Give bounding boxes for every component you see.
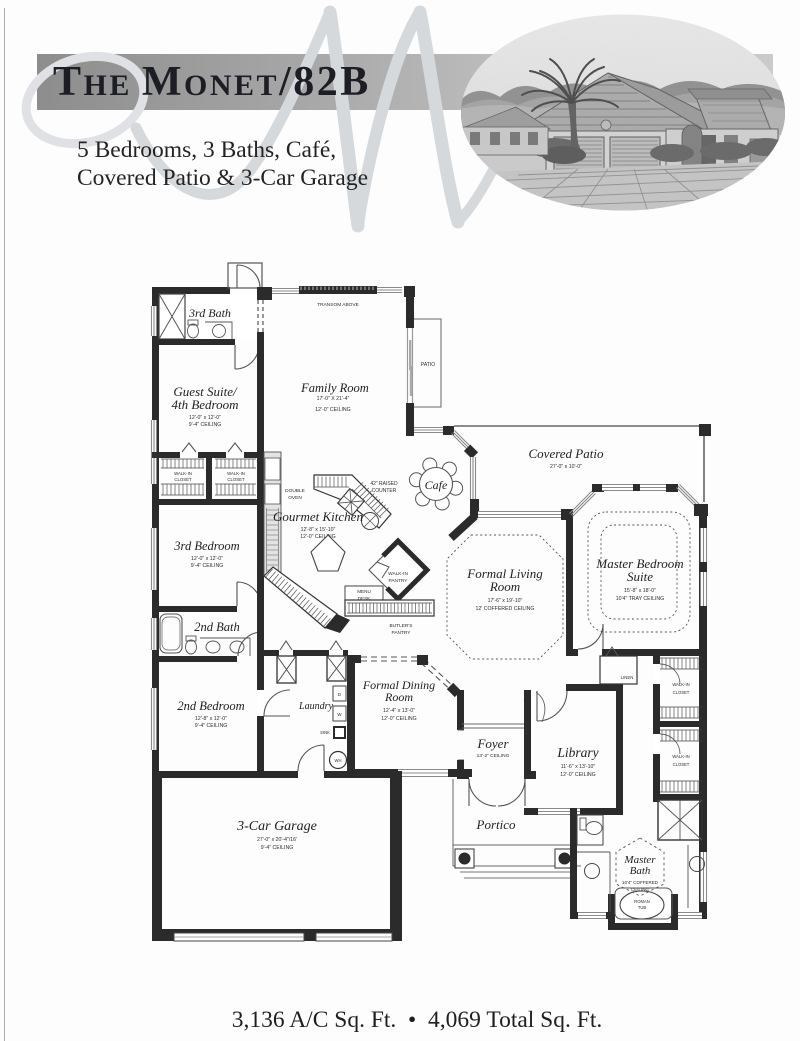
svg-text:CLOSET: CLOSET	[227, 477, 245, 482]
svg-text:WALK-IN: WALK-IN	[174, 471, 192, 476]
svg-text:13'-2" CEILING: 13'-2" CEILING	[477, 753, 510, 759]
svg-text:OVEN: OVEN	[288, 495, 302, 501]
svg-text:Cafe: Cafe	[425, 478, 448, 492]
svg-text:WH: WH	[335, 758, 342, 763]
svg-text:WALK-IN: WALK-IN	[672, 682, 689, 687]
svg-text:10'4" COFFERED: 10'4" COFFERED	[622, 880, 659, 885]
svg-text:Family Room: Family Room	[300, 381, 369, 395]
svg-text:12'-0" CEILING: 12'-0" CEILING	[315, 407, 350, 413]
svg-text:CEILING: CEILING	[631, 887, 650, 892]
svg-text:9'-4" CEILING: 9'-4" CEILING	[195, 723, 228, 729]
svg-text:D: D	[338, 692, 341, 697]
svg-text:17'-6" x 19'-10": 17'-6" x 19'-10"	[488, 598, 523, 604]
svg-text:27'-0" x 10'-0": 27'-0" x 10'-0"	[550, 464, 582, 470]
svg-text:4th Bedroom: 4th Bedroom	[171, 397, 238, 412]
svg-text:12'-0" x 12'-0": 12'-0" x 12'-0"	[191, 556, 223, 562]
svg-text:12'-0" x 12'-0": 12'-0" x 12'-0"	[189, 415, 221, 421]
svg-text:12'-4" x 13'-0": 12'-4" x 13'-0"	[383, 708, 415, 714]
svg-text:Foyer: Foyer	[476, 736, 509, 751]
svg-text:PANTRY: PANTRY	[391, 630, 411, 636]
svg-text:3rd Bath: 3rd Bath	[188, 306, 231, 320]
svg-text:9'-4" CEILING: 9'-4" CEILING	[191, 563, 224, 569]
svg-text:3-Car Garage: 3-Car Garage	[236, 819, 317, 834]
svg-text:12'-0" CEILING: 12'-0" CEILING	[381, 716, 416, 722]
svg-text:Suite: Suite	[627, 569, 653, 584]
svg-text:Bath: Bath	[630, 865, 651, 877]
svg-text:BUTLER'S: BUTLER'S	[389, 623, 412, 629]
svg-text:WALK-IN: WALK-IN	[672, 754, 689, 759]
svg-text:DOUBLE: DOUBLE	[285, 488, 305, 494]
svg-text:ROMAN: ROMAN	[634, 899, 650, 904]
svg-text:12'-8" x 15'-10": 12'-8" x 15'-10"	[301, 527, 336, 533]
svg-text:LINEN: LINEN	[621, 675, 634, 680]
svg-text:W: W	[337, 712, 342, 717]
svg-text:17'-0" X 21'-4": 17'-0" X 21'-4"	[317, 396, 350, 402]
svg-text:12'-0" CEILING: 12'-0" CEILING	[560, 772, 595, 778]
svg-text:12' COFFERED CEILING: 12' COFFERED CEILING	[476, 606, 535, 612]
svg-text:9'-4" CEILING: 9'-4" CEILING	[189, 422, 222, 428]
svg-text:11'-6" x 13'-10": 11'-6" x 13'-10"	[561, 764, 596, 770]
svg-text:42" RAISED: 42" RAISED	[370, 481, 398, 487]
svg-text:MENU: MENU	[357, 589, 371, 594]
svg-text:TRANSOM ABOVE: TRANSOM ABOVE	[317, 302, 359, 308]
svg-text:WALK-IN: WALK-IN	[388, 571, 408, 577]
svg-text:CLOSET: CLOSET	[673, 762, 690, 767]
svg-text:Room: Room	[384, 690, 413, 704]
svg-text:2nd Bath: 2nd Bath	[194, 620, 239, 634]
svg-text:Covered Patio: Covered Patio	[529, 446, 604, 461]
svg-text:Laundry: Laundry	[298, 701, 333, 712]
svg-text:WALK-IN: WALK-IN	[227, 471, 245, 476]
svg-text:9'-4" CEILING: 9'-4" CEILING	[261, 845, 294, 851]
svg-text:PATIO: PATIO	[421, 362, 435, 368]
svg-text:12'-8" x 12'-0": 12'-8" x 12'-0"	[195, 716, 227, 722]
svg-text:COUNTER: COUNTER	[372, 488, 397, 494]
svg-text:CLOSET: CLOSET	[174, 477, 192, 482]
svg-text:TUB: TUB	[638, 905, 647, 910]
svg-text:27'-0" x 20'-4"/16': 27'-0" x 20'-4"/16'	[257, 837, 297, 843]
svg-text:PANTRY: PANTRY	[388, 578, 408, 584]
svg-text:Portico: Portico	[476, 817, 516, 832]
svg-text:3rd Bedroom: 3rd Bedroom	[173, 539, 239, 553]
svg-text:15'-8" x 18'-0": 15'-8" x 18'-0"	[624, 588, 656, 594]
svg-text:CLOSET: CLOSET	[673, 690, 690, 695]
svg-text:Library: Library	[556, 745, 598, 760]
svg-text:Room: Room	[489, 579, 520, 594]
svg-text:10'4" TRAY CEILING: 10'4" TRAY CEILING	[616, 596, 664, 602]
svg-text:SINK: SINK	[320, 730, 330, 735]
svg-text:Gourmet Kitchen: Gourmet Kitchen	[273, 509, 363, 524]
svg-text:2nd Bedroom: 2nd Bedroom	[177, 699, 244, 713]
